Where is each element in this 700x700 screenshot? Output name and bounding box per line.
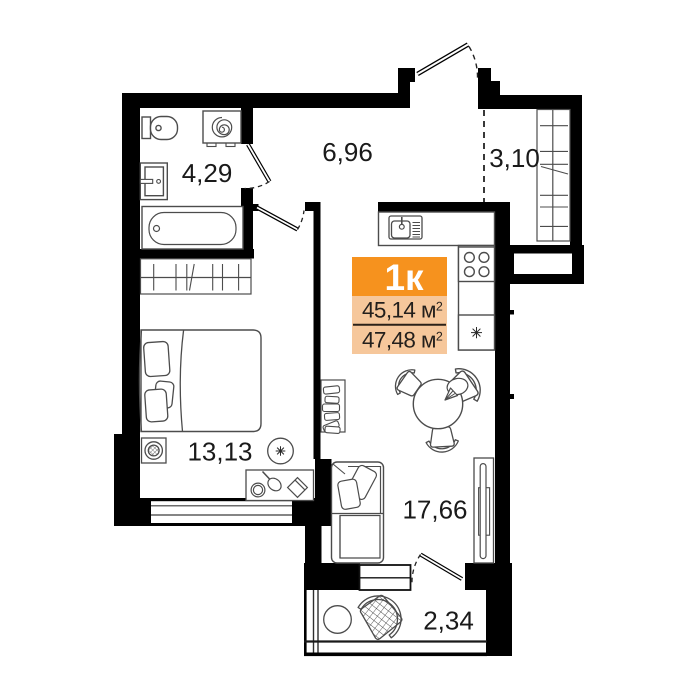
svg-text:4,29: 4,29 <box>182 158 233 188</box>
svg-text:45,14 м2: 45,14 м2 <box>362 298 443 323</box>
svg-text:3,10: 3,10 <box>489 143 540 173</box>
svg-text:47,48 м2: 47,48 м2 <box>362 328 443 353</box>
svg-text:17,66: 17,66 <box>402 495 467 525</box>
svg-text:2,34: 2,34 <box>423 606 474 636</box>
svg-text:13,13: 13,13 <box>187 437 252 467</box>
svg-text:6,96: 6,96 <box>322 137 373 167</box>
svg-text:1к: 1к <box>384 257 424 298</box>
